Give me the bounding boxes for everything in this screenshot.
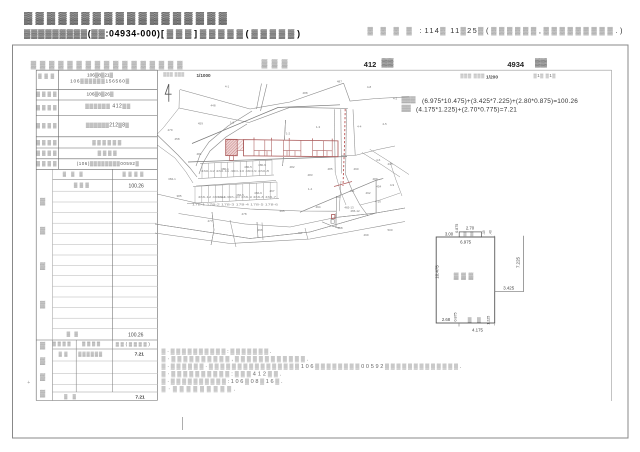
svg-text:(6.975*10.475)+(3.425*7.225)+(: (6.975*10.475)+(3.425*7.225)+(2.80*0.875… (422, 98, 578, 105)
svg-text:▓·▓▓▓▓▓▓·▓▓▓▓▓▓▓▓▓▓▓▓▓▓▓▓106▓▓: ▓·▓▓▓▓▓▓·▓▓▓▓▓▓▓▓▓▓▓▓▓▓▓▓106▓▓▓▓▓▓▓▓0059… (162, 363, 464, 370)
svg-text:▓▓▓▓: ▓▓▓▓ (37, 139, 59, 146)
svg-text:▓▓▓▓: ▓▓▓▓ (37, 150, 59, 157)
svg-text:4-9: 4-9 (390, 183, 395, 187)
svg-text:481: 481 (196, 152, 201, 156)
svg-text:▓▓▓: ▓▓▓ (262, 59, 292, 69)
svg-text:454: 454 (376, 184, 381, 188)
svg-text:▓: ▓ (40, 226, 46, 234)
svg-text:▓ ▓: ▓ ▓ (67, 331, 80, 338)
svg-text:466-9: 466-9 (254, 191, 262, 195)
svg-text:▓▓▓ ▓▓▓: ▓▓▓ ▓▓▓ (163, 72, 184, 78)
svg-text:▓▓▓: ▓▓▓ (38, 72, 57, 79)
svg-text:▓·▓▓▓▓▓▓▓▓▓.: ▓·▓▓▓▓▓▓▓▓▓. (162, 386, 239, 393)
svg-text:(4.175*1.225)+(2.70*0.775)=7.2: (4.175*1.225)+(2.70*0.775)=7.21 (416, 107, 517, 114)
svg-text:▓▓▓▓:: ▓▓▓▓: (368, 26, 430, 36)
svg-text:106▓8▓26▓: 106▓8▓26▓ (86, 91, 114, 98)
svg-text:▓·▓▓▓▓▓▓▓▓▓▓:106▓08▓16▓.: ▓·▓▓▓▓▓▓▓▓▓▓:106▓08▓16▓. (162, 378, 285, 385)
svg-text:500: 500 (387, 228, 392, 232)
svg-text:1-6: 1-6 (230, 121, 235, 125)
svg-text:2.68: 2.68 (442, 317, 451, 322)
svg-text:466-12 466-11 466-10 466-9 466: 466-12 466-11 466-10 466-9 466-8 466-7 (198, 195, 277, 199)
svg-text:7.225: 7.225 (516, 256, 521, 268)
svg-text:488: 488 (302, 91, 307, 95)
svg-text:3.00: 3.00 (445, 231, 454, 236)
svg-text:▓▓▓▓: ▓▓▓▓ (53, 341, 73, 347)
svg-text:▓: ▓ (40, 373, 46, 381)
svg-text:478: 478 (241, 212, 246, 216)
svg-text:4.175: 4.175 (472, 328, 484, 333)
svg-text:6.975: 6.975 (460, 240, 472, 245)
svg-text:412: 412 (364, 60, 377, 69)
svg-text:4-8: 4-8 (367, 85, 372, 89)
svg-text:3.425: 3.425 (503, 286, 515, 291)
svg-text:▓ ▓: ▓ ▓ (64, 394, 78, 400)
svg-text:▓▓▓▓▓▓212▓8▓: ▓▓▓▓▓▓212▓8▓ (86, 122, 129, 129)
svg-text:4-5: 4-5 (382, 122, 387, 126)
svg-text:4-6: 4-6 (376, 158, 381, 162)
svg-text:▓▓▓ ▓▓▓: ▓▓▓ ▓▓▓ (460, 73, 485, 79)
svg-text:▓▓: ▓▓ (59, 351, 70, 357)
svg-text:4-4: 4-4 (357, 124, 362, 128)
svg-text:▓▓▓▓: ▓▓▓▓ (123, 171, 147, 177)
svg-text:467: 467 (269, 189, 274, 193)
svg-text:1/1000: 1/1000 (197, 73, 211, 78)
svg-text:▓▓▓: ▓▓▓ (454, 272, 476, 280)
svg-text:0.875: 0.875 (453, 313, 457, 322)
svg-text:415: 415 (387, 162, 392, 166)
svg-text:▓·▓▓▓▓▓▓▓▓▓▓:▓▓▓412▓▓.: ▓·▓▓▓▓▓▓▓▓▓▓:▓▓▓412▓▓. (162, 371, 284, 378)
svg-text:490: 490 (353, 167, 358, 171)
svg-text:▓▓▓▓: ▓▓▓▓ (98, 150, 119, 157)
svg-text:▓▓▓▓: ▓▓▓▓ (37, 122, 59, 129)
svg-text:384-1: 384-1 (168, 177, 176, 181)
svg-text:▓: ▓ (40, 197, 46, 205)
svg-text:(▓▓▓▓▓▓,▓▓▓▓▓▓▓▓▓.): (▓▓▓▓▓▓,▓▓▓▓▓▓▓▓▓.) (486, 26, 625, 36)
svg-text:480-9: 480-9 (258, 163, 266, 167)
svg-text:106▓8▓21▓: 106▓8▓21▓ (87, 72, 114, 79)
svg-text:479: 479 (167, 128, 172, 132)
svg-text:4-1: 4-1 (225, 85, 230, 89)
svg-text:▓▓▓▓▓▓: ▓▓▓▓▓▓ (78, 351, 103, 357)
svg-text:100.26: 100.26 (128, 333, 144, 339)
svg-text:▓▓▓▓▓▓ 412▓▓: ▓▓▓▓▓▓ 412▓▓ (85, 102, 131, 109)
svg-text:4934: 4934 (507, 60, 525, 69)
svg-text:▓: ▓ (40, 357, 46, 365)
svg-text:100.26: 100.26 (129, 184, 145, 190)
svg-text:1/200: 1/200 (486, 74, 498, 80)
svg-text:.15: .15 (482, 230, 486, 235)
svg-text:7.21: 7.21 (135, 394, 145, 400)
svg-text:1-2: 1-2 (286, 132, 291, 136)
svg-text:178-1 178-2 178-3 178-4 178-5: 178-1 178-2 178-3 178-4 178-5 178-6 (192, 203, 279, 207)
svg-text:482: 482 (289, 165, 294, 169)
svg-text:▓1▓ ▓1▓: ▓1▓ ▓1▓ (534, 73, 557, 79)
svg-text:▓ ▓ ▓: ▓ ▓ ▓ (63, 171, 85, 177)
svg-text:10.475: 10.475 (435, 265, 440, 279)
svg-text:▓: ▓ (40, 262, 46, 270)
svg-text:▓: ▓ (40, 389, 46, 397)
svg-text:499: 499 (363, 233, 368, 237)
svg-text:▓▓▓▓▓▓▓▓▓(▓▓:04934-000): ▓▓▓▓▓▓▓▓▓(▓▓:04934-000) (24, 28, 161, 39)
svg-text:▓▓▓▓▓▓: ▓▓▓▓▓▓ (92, 139, 123, 146)
svg-text:▓▓▓▓▓▓▓▓▓▓▓▓▓▓▓▓▓: ▓▓▓▓▓▓▓▓▓▓▓▓▓▓▓▓▓ (31, 60, 187, 70)
svg-text:▓▓▓▓: ▓▓▓▓ (37, 104, 59, 111)
svg-text:+: + (27, 380, 30, 386)
svg-text:▓▓(▓▓▓▓): ▓▓(▓▓▓▓) (116, 341, 152, 347)
svg-text:106▓▓▓▓▓▓156560▓: 106▓▓▓▓▓▓156560▓ (70, 77, 130, 84)
svg-text:114▓ 11▓25▓: 114▓ 11▓25▓ (425, 26, 485, 36)
svg-text:385: 385 (176, 194, 181, 198)
svg-text:458: 458 (174, 137, 179, 141)
svg-text:487: 487 (337, 80, 342, 84)
svg-text:▓▓▓▓: ▓▓▓▓ (82, 341, 102, 347)
svg-text:7.21: 7.21 (135, 352, 145, 358)
svg-text:1.225: 1.225 (486, 316, 490, 325)
svg-text:492: 492 (365, 191, 370, 195)
svg-text:(106)▓▓▓▓▓▓▓▓00592▓: (106)▓▓▓▓▓▓▓▓00592▓ (77, 161, 140, 167)
svg-text:▓▓: ▓▓ (463, 231, 477, 237)
svg-text:4-2: 4-2 (393, 97, 398, 101)
svg-text:485: 485 (327, 167, 332, 171)
svg-text:460-12 460-11 460-10 460-9 460: 460-12 460-11 460-10 460-9 460-8 (201, 169, 270, 173)
svg-text:[▓▓▓]▓▓▓▓▓(▓▓▓▓▓): [▓▓▓]▓▓▓▓▓(▓▓▓▓▓) (161, 28, 303, 39)
svg-text:▓▓: ▓▓ (535, 57, 547, 68)
svg-text:1-4: 1-4 (308, 187, 313, 191)
svg-text:▓▓: ▓▓ (402, 104, 412, 112)
svg-text:▓·▓▓▓▓▓▓▓▓▓▓,▓▓▓▓▓▓▓▓▓▓▓▓.: ▓·▓▓▓▓▓▓▓▓▓▓,▓▓▓▓▓▓▓▓▓▓▓▓. (162, 356, 311, 363)
svg-text:▓: ▓ (40, 300, 46, 308)
svg-text:▓▓▓: ▓▓▓ (74, 182, 91, 189)
svg-text:▓▓▓▓▓▓▓▓▓▓▓▓▓▓▓▓▓▓: ▓▓▓▓▓▓▓▓▓▓▓▓▓▓▓▓▓▓ (24, 12, 230, 26)
svg-text:▓·▓▓▓▓▓▓▓▓▓▓:▓▓▓▓▓▓▓.: ▓·▓▓▓▓▓▓▓▓▓▓:▓▓▓▓▓▓▓. (162, 348, 274, 355)
svg-text:.40: .40 (489, 230, 493, 235)
svg-text:480-5: 480-5 (244, 165, 252, 169)
svg-text:▓: ▓ (40, 341, 46, 349)
svg-text:▓▓: ▓▓ (382, 57, 394, 68)
svg-text:1-3: 1-3 (316, 125, 321, 129)
svg-text:498: 498 (337, 226, 342, 230)
svg-text:▓▓▓▓: ▓▓▓▓ (37, 160, 59, 167)
svg-text:▓▓: ▓▓ (468, 317, 486, 324)
svg-text:483: 483 (307, 173, 312, 177)
svg-text:459: 459 (198, 122, 203, 126)
svg-text:465-12: 465-12 (350, 209, 360, 213)
svg-text:496: 496 (257, 228, 262, 232)
svg-text:4-10: 4-10 (375, 199, 381, 203)
svg-text:2.70: 2.70 (466, 225, 475, 230)
svg-text:0.875: 0.875 (455, 224, 459, 233)
svg-text:▓▓▓▓: ▓▓▓▓ (37, 91, 59, 98)
svg-text:448: 448 (210, 104, 215, 108)
svg-text:477: 477 (207, 219, 212, 223)
svg-text:495: 495 (279, 209, 284, 213)
